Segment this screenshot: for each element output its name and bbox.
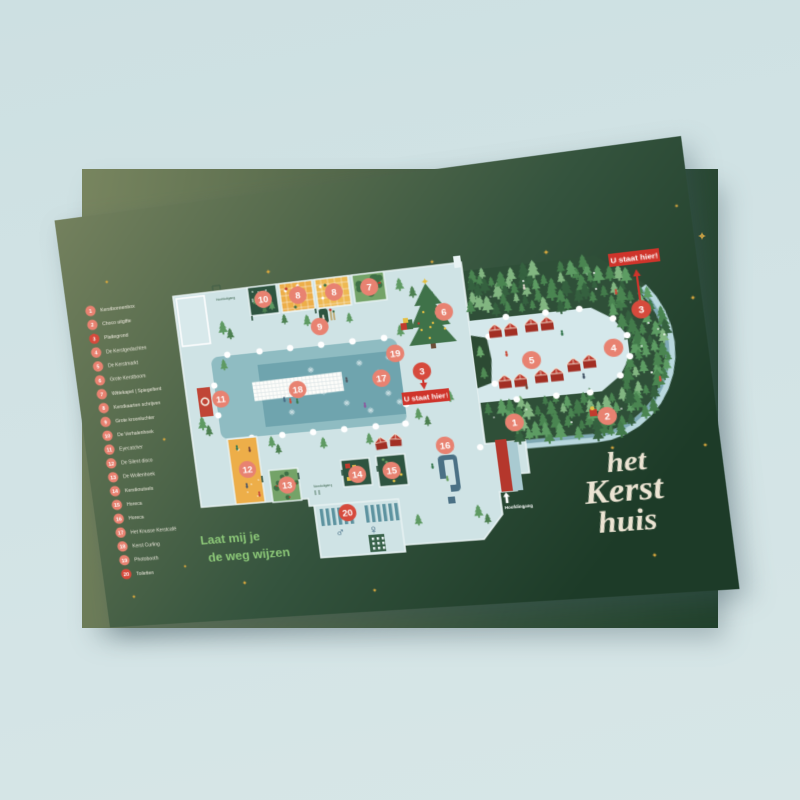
svg-text:17: 17 [118, 530, 125, 536]
svg-text:16: 16 [439, 440, 451, 452]
svg-text:18: 18 [292, 384, 304, 395]
svg-text:20: 20 [123, 572, 130, 578]
svg-text:13: 13 [281, 480, 293, 491]
svg-text:15: 15 [386, 465, 398, 476]
svg-text:10: 10 [104, 433, 111, 440]
svg-text:12: 12 [242, 464, 254, 475]
svg-text:17: 17 [375, 372, 387, 384]
svg-text:13: 13 [110, 475, 117, 482]
svg-text:20: 20 [342, 507, 354, 518]
svg-text:16: 16 [116, 516, 123, 522]
svg-text:10: 10 [257, 294, 269, 306]
svg-text:12: 12 [108, 461, 115, 468]
svg-text:15: 15 [114, 503, 121, 509]
svg-text:♂: ♂ [335, 524, 346, 539]
svg-text:18: 18 [119, 544, 126, 550]
svg-text:19: 19 [389, 348, 401, 360]
svg-text:11: 11 [215, 394, 226, 405]
svg-text:14: 14 [351, 469, 363, 480]
svg-text:11: 11 [106, 447, 112, 454]
svg-text:Toiletten: Toiletten [136, 570, 155, 577]
svg-text:19: 19 [121, 558, 128, 564]
svg-text:Horeca: Horeca [127, 501, 143, 508]
svg-text:14: 14 [112, 489, 119, 496]
svg-text:huis: huis [596, 502, 659, 540]
svg-text:Horeca: Horeca [128, 514, 144, 521]
